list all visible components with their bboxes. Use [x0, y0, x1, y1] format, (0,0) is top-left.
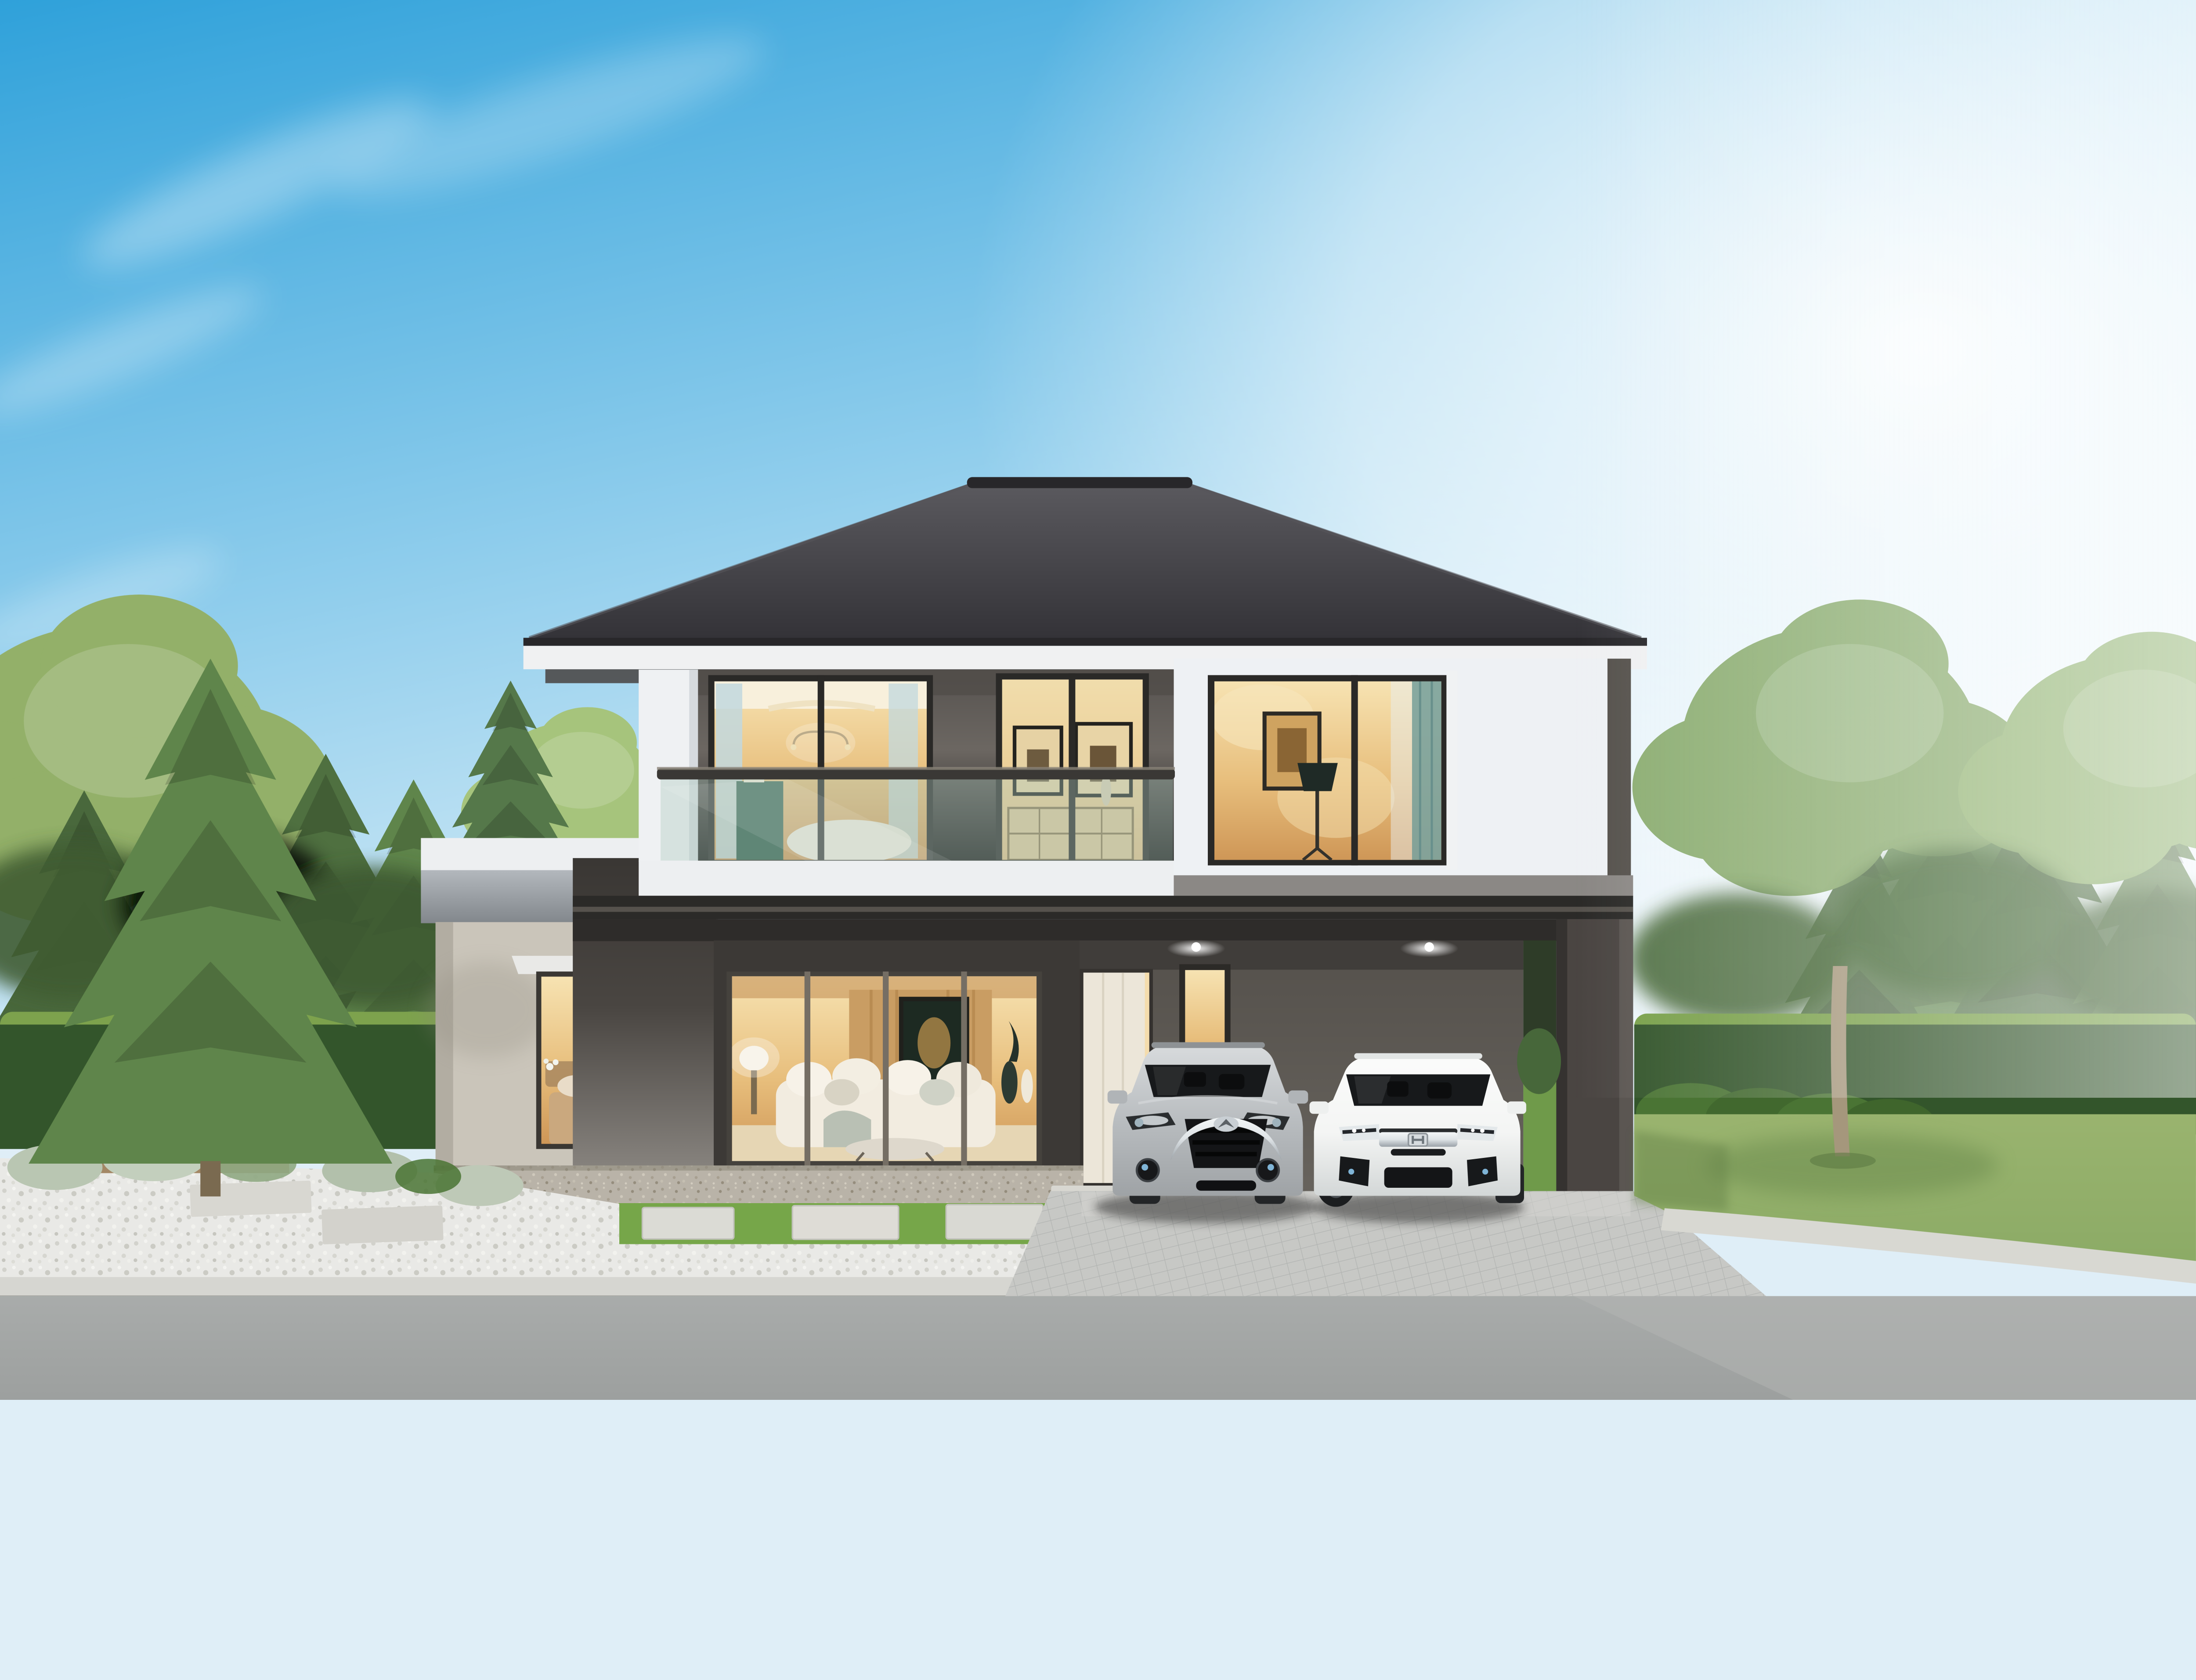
- window-fin: [1446, 671, 1457, 870]
- honda-mirror: [1507, 1101, 1526, 1114]
- beam-under-shadow: [573, 919, 1633, 941]
- ridge-cap: [967, 477, 1192, 488]
- front-curb: [0, 1277, 1098, 1298]
- floor-lamp-shade: [1297, 763, 1338, 791]
- mazda-mirror: [1108, 1090, 1127, 1103]
- balcony-railing: glass-railing balcony with two lit slidi…: [657, 767, 1175, 861]
- second-floor: sliding door with chandelier and blue cu…: [639, 659, 1631, 898]
- stepping-stones: [643, 1204, 1043, 1239]
- mazda-lower-intake: [1196, 1180, 1256, 1190]
- corner-window: [1208, 671, 1457, 870]
- walkway-slab: [321, 1205, 444, 1244]
- honda-mirror: [1310, 1101, 1329, 1114]
- upper-white-volume: white volume with lit corner window, flo…: [1174, 659, 1631, 898]
- living-window: living room picture window with white so…: [726, 971, 1042, 1166]
- balcony-parapet: [639, 861, 1174, 896]
- roof-edge-lip: [524, 638, 1647, 645]
- mazda-foglight: [1137, 1159, 1159, 1181]
- mazda-mirror: [1288, 1090, 1308, 1103]
- render-stage: 3D exterior rendering of a modern two-st…: [0, 0, 2196, 1400]
- house-exterior-rendering: 3D exterior rendering of a modern two-st…: [0, 0, 2196, 1400]
- honda-lower-grille: [1384, 1167, 1452, 1188]
- beam-soffit-gray: [1174, 875, 1633, 896]
- beam-reveal-line: [573, 907, 1633, 912]
- mazda-foglight: [1257, 1159, 1279, 1181]
- car-honda-white: white Honda sedan, front view: [1310, 1053, 1526, 1223]
- atmospheric-haze: [1574, 0, 2196, 1098]
- hedge-gap: [1517, 941, 1561, 1193]
- balcony-handrail: [657, 768, 1175, 779]
- carport-wall-top-shadow: [1080, 941, 1523, 970]
